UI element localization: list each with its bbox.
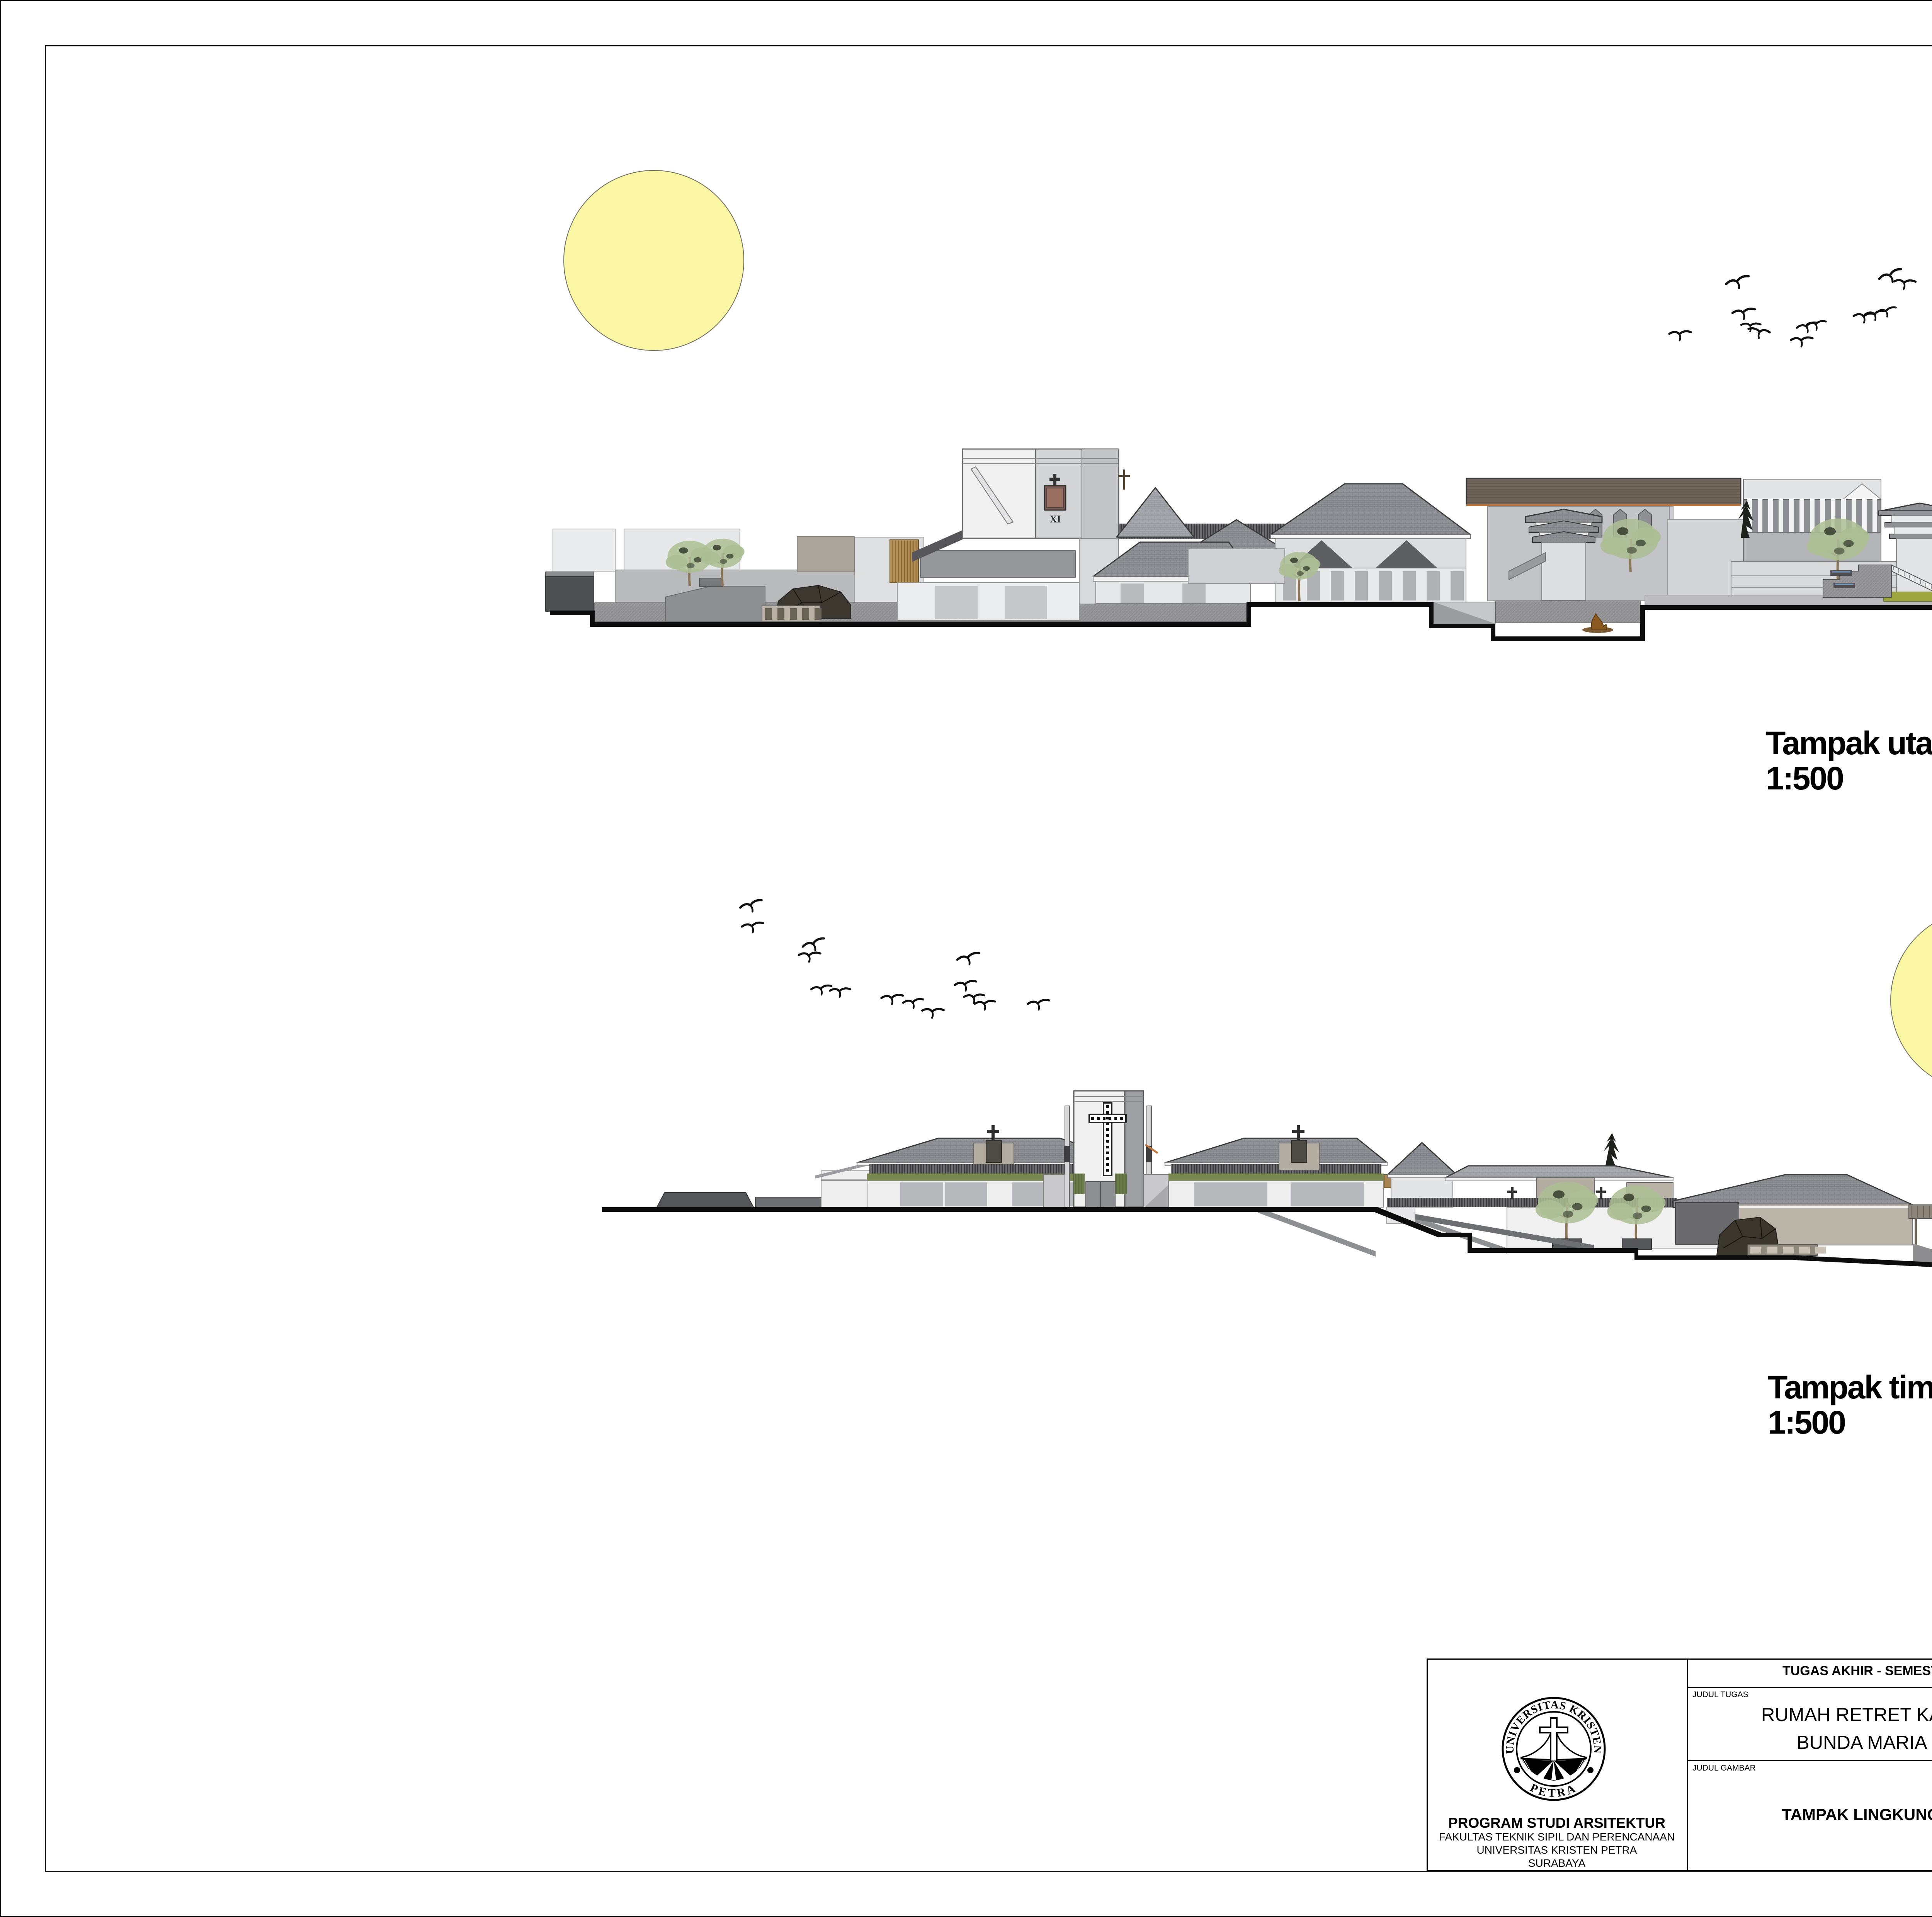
svg-text:XI: XI — [1050, 514, 1061, 525]
